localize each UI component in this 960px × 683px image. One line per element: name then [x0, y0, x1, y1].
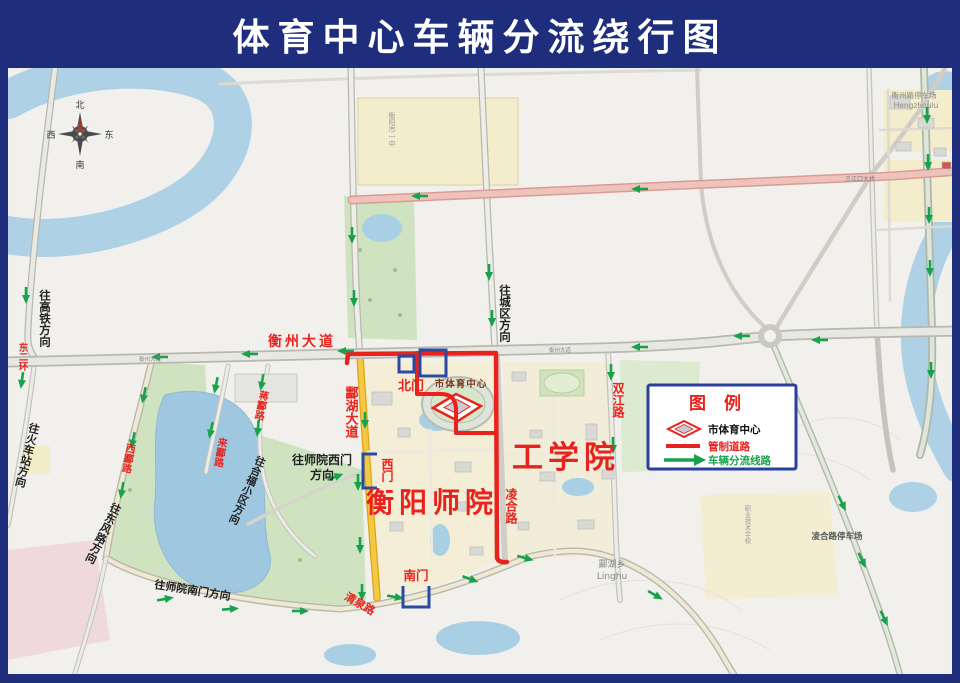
legend-sports-center-label: 市体育中心: [708, 423, 761, 436]
vocational-school-label: 职业技术学校: [743, 505, 751, 546]
south-gate-label: 南门: [403, 568, 428, 583]
to-shiyuan-west-gate-label-2: 方向: [310, 467, 334, 482]
linghu-pinyin-label: Linghu: [597, 572, 627, 582]
hengzhou-avenue-small-label-2: 衡州大道: [549, 346, 572, 354]
to-gaotie-label: 往高铁方向: [38, 288, 52, 347]
linghe-road-label: 凌合路: [504, 487, 518, 525]
linghe-parking-label: 凌合路停车场: [811, 531, 863, 542]
legend-title: 图 例: [689, 393, 747, 414]
linghu-township-label: 酃湖乡: [598, 559, 625, 570]
school-block-label: 衡阳市一中: [388, 111, 396, 148]
compass-east-label: 东: [104, 129, 113, 141]
compass-west-label: 西: [46, 130, 55, 141]
sanjiangkou-bridge-label: 三江口大桥: [845, 175, 875, 183]
legend-box: 图 例 市体育中心 管制道路 车辆分流线路: [648, 385, 796, 469]
west-gate-label: 西门: [380, 458, 394, 483]
shuangjiang-road-label: 双江路: [611, 382, 625, 419]
linghu-avenue-label: 酃湖大道: [343, 385, 359, 439]
north-gate-label: 北门: [398, 378, 424, 394]
compass-south-label: 南: [75, 159, 84, 171]
sports-center-label: 市体育中心: [435, 378, 488, 390]
hengzhou-avenue-label: 衡州大道: [268, 333, 336, 350]
hengzhou-parking-label: 衡州路停车场: [892, 90, 937, 100]
legend-restricted-road-label: 管制道路: [708, 440, 750, 453]
east-second-ring-label: 东二环: [17, 342, 29, 372]
engineering-college-label: 工学院: [512, 440, 620, 476]
page-title: 体育中心车辆分流绕行图: [0, 0, 960, 68]
map-canvas: 北 南 西 东 衡州大道 衡州大道 衡州大道 酃湖大道 凌合路 双江路 清泉路 …: [8, 68, 952, 674]
normal-college-label: 衡阳师院: [366, 486, 498, 519]
to-city-label: 往城区方向: [498, 283, 512, 342]
hengzhou-pinyin-label: Hengzhoulu: [894, 101, 939, 110]
compass-north-label: 北: [75, 100, 84, 111]
hengzhou-avenue-small-label: 衡州大道: [139, 355, 162, 363]
to-shiyuan-west-gate-label-1: 往师院西门: [292, 452, 352, 467]
legend-diversion-route-label: 车辆分流线路: [708, 454, 771, 467]
map-container: 北 南 西 东 衡州大道 衡州大道 衡州大道 酃湖大道 凌合路 双江路 清泉路 …: [8, 68, 952, 674]
